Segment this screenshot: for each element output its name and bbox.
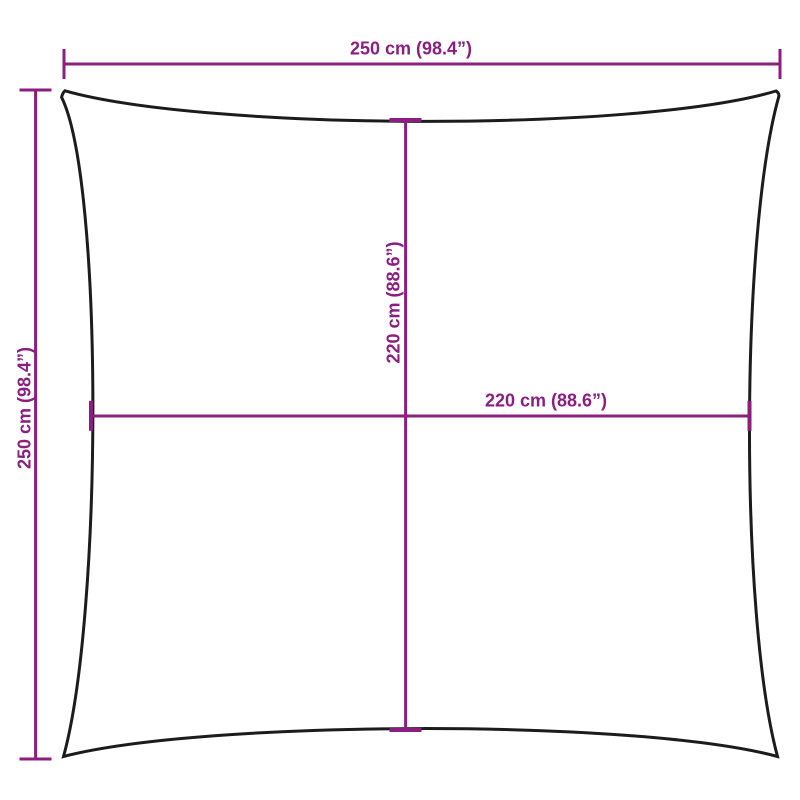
svg-text:250 cm (98.4”): 250 cm (98.4”) [350, 39, 472, 59]
svg-text:220 cm (88.6”): 220 cm (88.6”) [384, 241, 404, 363]
svg-text:220 cm (88.6”): 220 cm (88.6”) [485, 390, 607, 410]
svg-text:250 cm (98.4”): 250 cm (98.4”) [15, 347, 35, 469]
